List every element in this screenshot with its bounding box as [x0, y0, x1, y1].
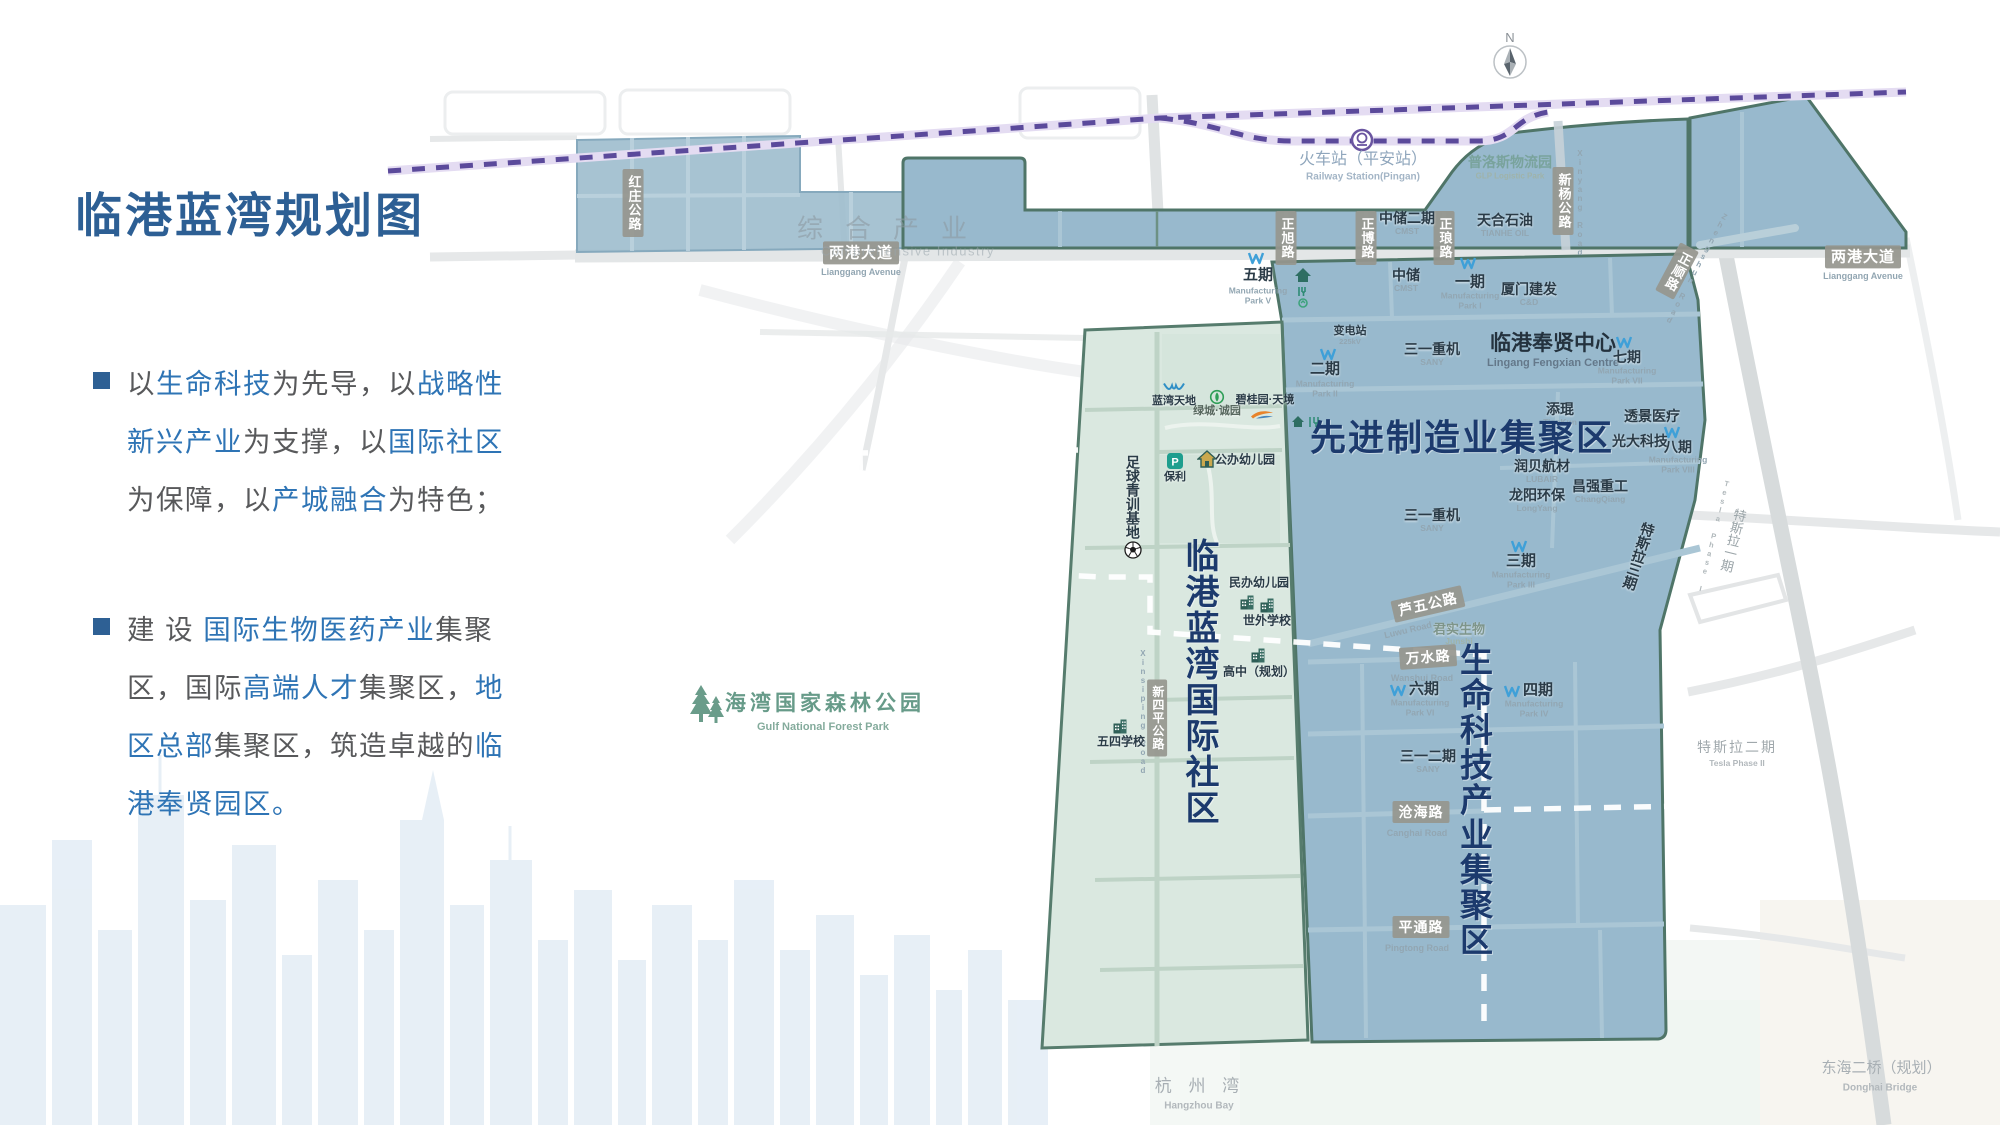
road-badge-lianggang-east: 两港大道: [1825, 245, 1901, 268]
sub-label: LUBAIR: [1526, 475, 1558, 485]
road-badge-canghai: 沧海路: [1393, 801, 1450, 823]
bullet-text-segment: 产城融合: [272, 484, 388, 515]
bullet-text-segment: 港奉贤园区。: [127, 788, 301, 819]
sub-label: Pingtong Road: [1385, 943, 1449, 953]
sub-label: CMST: [1394, 284, 1418, 294]
bird-icon: [1163, 382, 1185, 395]
w-icon: [1320, 348, 1337, 361]
road-badge-zhenglang: 正琅路: [1434, 211, 1455, 265]
lingang-fengxian-centre-label: 临港奉贤中心: [1490, 332, 1616, 356]
facility-label: 君实生物: [1433, 623, 1485, 638]
football-training-base-label: 足球青训基地: [1124, 455, 1140, 539]
bullet-text-segment: 新兴产业: [127, 426, 243, 457]
bullet-text-segment: 为先导，以: [272, 368, 417, 399]
donghai-bridge-label: 东海二桥（规划）: [1822, 1061, 1941, 1078]
facility-label: 五四学校: [1097, 735, 1145, 748]
bullet-text-1: 以生命科技为先导，以战略性新兴产业为支撑，以国际社区为保障，以产城融合为特色；: [127, 355, 504, 529]
w-icon: [1664, 426, 1681, 439]
bullet-text-segment: 以: [127, 368, 156, 399]
sub-label: SANY: [1416, 765, 1440, 775]
facility-label: 七期: [1613, 350, 1641, 366]
sub-label: Tesla Phase II: [1709, 759, 1765, 769]
road-badge-xinsiping: 新四平公路: [1147, 680, 1167, 757]
sub-label: Hangzhou Bay: [1164, 1100, 1233, 1111]
facility-label: 蓝湾天地: [1152, 395, 1196, 407]
facility-label: 高中（规划）: [1223, 665, 1295, 678]
facility-label: 三一二期: [1400, 749, 1456, 765]
road-badge-xinyang: 新杨公路: [1553, 167, 1574, 235]
w-icon: [1504, 685, 1521, 698]
sub-label: Gulf National Forest Park: [757, 721, 889, 733]
facility-label: 变电站: [1334, 325, 1367, 337]
sub-label: Lianggang Avenue: [1823, 271, 1903, 281]
bullet-text-segment: 集聚区，: [359, 672, 475, 703]
gulf-forest-park-label: 海湾国家森林公园: [725, 692, 925, 716]
facility-label: 三期: [1506, 554, 1536, 571]
bullet-text-segment: 区，国际: [127, 672, 243, 703]
sub-label: Canghai Road: [1387, 828, 1448, 838]
comprehensive-industry-label: 综合产业: [797, 214, 989, 243]
bullet-text-segment: 地: [475, 672, 504, 703]
sub-label: SANY: [1420, 358, 1444, 368]
bullet-text-segment: 国际社区: [388, 426, 504, 457]
bullet-text-segment: 集聚区，筑造卓越的: [214, 730, 475, 761]
sub-label: Manufacturing Park I: [1441, 291, 1500, 310]
bullet-text-segment: 区总部: [127, 730, 214, 761]
sub-label: Xinyang Road: [1575, 149, 1584, 257]
facility-label: 绿城·诚园: [1193, 405, 1241, 417]
bullet-text-segment: 国际生物医药产业: [203, 614, 435, 645]
school-icon: [1259, 597, 1276, 614]
page-title: 临港蓝湾规划图: [75, 177, 425, 246]
road-badge-zhengbo: 正博路: [1356, 211, 1377, 265]
road-badge-wanshui: 万水路: [1399, 644, 1457, 670]
facility-label: 四期: [1523, 683, 1553, 700]
sub-label: Manufacturing Park VII: [1598, 366, 1657, 385]
w-icon: [1248, 252, 1265, 265]
svg-text:P: P: [1171, 457, 1178, 469]
sub-label: SANY: [1420, 524, 1444, 534]
tesla-phase2-label: 特斯拉二期: [1697, 740, 1777, 756]
sub-label: Manufacturing Park III: [1492, 570, 1551, 589]
facility-label: 龙阳环保: [1509, 488, 1565, 504]
school-icon: [1239, 594, 1256, 611]
school-icon: [1112, 718, 1129, 735]
facility-label: 二期: [1310, 362, 1340, 379]
facility-label: 透景医疗: [1624, 409, 1680, 425]
bullet-item-1: 以生命科技为先导，以战略性新兴产业为支撑，以国际社区为保障，以产城融合为特色；: [93, 355, 504, 529]
sub-label: CMST: [1395, 227, 1419, 237]
facility-label: 公办幼儿园: [1215, 453, 1275, 466]
facility-label: 三一重机: [1404, 508, 1460, 524]
bullet-text-segment: 为保障，以: [127, 484, 272, 515]
sub-label: GLP Logistic Park: [1476, 173, 1545, 182]
sub-label: Manufacturing Park VIII: [1649, 455, 1708, 474]
facility-label: 天合石油: [1477, 213, 1533, 229]
facility-label: 中储二期: [1379, 211, 1435, 227]
hangzhou-bay-label: 杭 州 湾: [1155, 1076, 1245, 1095]
railway-station-label: 火车站（平安站）: [1299, 151, 1427, 169]
context-label: Comprehensive Industry: [821, 245, 995, 260]
compass: N: [1494, 30, 1526, 78]
facility-label: 五期: [1243, 268, 1273, 285]
poly-icon: P: [1167, 453, 1183, 469]
green-icon: [1210, 390, 1225, 405]
compass-n: N: [1505, 30, 1514, 45]
sub-label: Manufacturing Park II: [1296, 379, 1355, 398]
bullet-text-2: 建 设 国际生物医药产业集聚区，国际高端人才集聚区，地区总部集聚区，筑造卓越的临…: [127, 601, 504, 833]
bullet-text-segment: 战略性: [417, 368, 504, 399]
sub-label: 225kV: [1339, 338, 1361, 346]
bullet-marker: [93, 618, 110, 635]
sub-label: Railway Station(Pingan): [1306, 171, 1420, 182]
w-icon: [1460, 257, 1477, 270]
railway-station-icon: [1352, 130, 1372, 150]
bullet-marker: [93, 372, 110, 389]
slide-canvas: N 临港蓝湾规划图 以生命科技为先导，以战略性新兴产业为支撑，以国际社区为保障，…: [0, 0, 2000, 1125]
advanced-manufacturing-zone-label: 先进制造业集聚区: [1310, 418, 1614, 458]
facility-label: 光大科技: [1612, 434, 1668, 450]
sub-label: C&D: [1520, 298, 1538, 308]
trees-icon: [689, 684, 725, 726]
ball-icon: [1124, 541, 1142, 559]
planning-map: N: [0, 0, 2000, 1125]
homefork-icon: [1293, 267, 1313, 309]
facility-label: 一期: [1455, 275, 1485, 292]
bullet-item-2: 建 设 国际生物医药产业集聚区，国际高端人才集聚区，地区总部集聚区，筑造卓越的临…: [93, 601, 504, 833]
sub-label: Lianggang Avenue: [821, 267, 901, 277]
bullet-text-segment: 为特色；: [388, 484, 504, 515]
facility-label: 三一重机: [1404, 342, 1460, 358]
sub-label: ChangQiang: [1575, 495, 1626, 505]
life-science-zone-label: 生命科技产业集聚区: [1455, 643, 1492, 958]
facility-label: 碧桂园·天境: [1236, 394, 1295, 406]
facility-label: 八期: [1664, 440, 1692, 456]
bullet-text-segment: 建 设: [127, 614, 203, 645]
bullet-text-segment: 临: [475, 730, 504, 761]
sub-label: Manufacturing Park IV: [1505, 699, 1564, 718]
sub-label: TIANHE OIL: [1481, 229, 1529, 239]
facility-label: 保利: [1164, 471, 1186, 483]
sub-label: Xinsiping Road: [1138, 649, 1147, 775]
facility-label: 世外学校: [1243, 614, 1291, 627]
facility-label: 中储: [1392, 268, 1420, 284]
road-badge-zhengxu: 正旭路: [1276, 211, 1297, 265]
road-badge-pingtong: 平通路: [1393, 916, 1450, 938]
facility-label: 添琨: [1546, 402, 1574, 418]
sub-label: Manufacturing Park V: [1229, 286, 1288, 305]
facility-label: 民办幼儿园: [1229, 576, 1289, 589]
facility-label: 昌强重工: [1572, 479, 1628, 495]
sub-label: Manufacturing Park VI: [1391, 698, 1450, 717]
glp-park-label: 普洛斯物流园: [1468, 155, 1552, 171]
green-community-region: [1042, 322, 1308, 1048]
sub-label: Donghai Bridge: [1843, 1082, 1917, 1093]
w-icon: [1511, 540, 1528, 553]
bullet-text-segment: 生命科技: [156, 368, 272, 399]
sub-label: LongYang: [1516, 504, 1557, 514]
bullet-text-segment: 集聚: [435, 614, 493, 645]
road-badge-hongzhuang: 红庄公路: [623, 169, 644, 237]
phoenix-icon: [1250, 409, 1274, 420]
international-community-zone-label: 临港蓝湾国际社区: [1180, 538, 1218, 826]
facility-label: 厦门建发: [1501, 282, 1557, 298]
bullet-text-segment: 高端人才: [243, 672, 359, 703]
facility-label: 六期: [1409, 682, 1439, 699]
facility-label: 润贝航材: [1514, 459, 1570, 475]
bullet-text-segment: 为支撑，以: [243, 426, 388, 457]
school-icon: [1250, 647, 1267, 664]
w-icon: [1390, 684, 1407, 697]
w-icon: [1616, 336, 1633, 349]
